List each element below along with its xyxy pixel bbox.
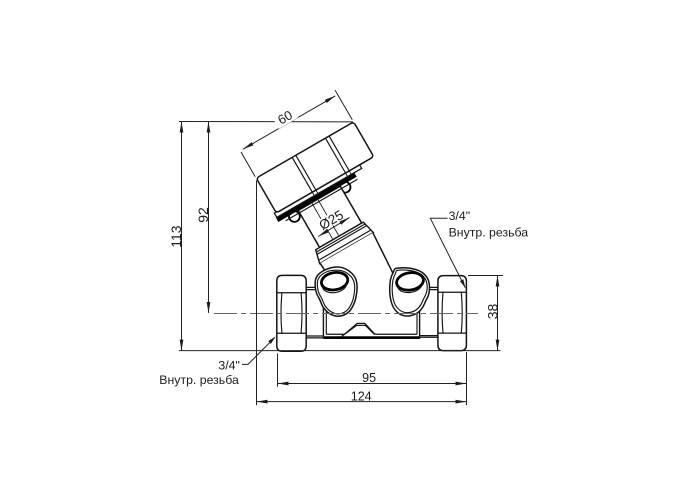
svg-text:113: 113 bbox=[168, 225, 184, 248]
svg-text:92: 92 bbox=[195, 207, 211, 223]
svg-text:124: 124 bbox=[351, 390, 372, 404]
svg-text:Внутр. резьба: Внутр. резьба bbox=[159, 373, 239, 387]
svg-text:38: 38 bbox=[485, 304, 501, 320]
svg-text:3/4": 3/4" bbox=[449, 209, 470, 223]
svg-text:3/4": 3/4" bbox=[218, 358, 239, 372]
svg-text:Внутр. резьба: Внутр. резьба bbox=[449, 226, 529, 240]
svg-text:95: 95 bbox=[362, 371, 376, 385]
